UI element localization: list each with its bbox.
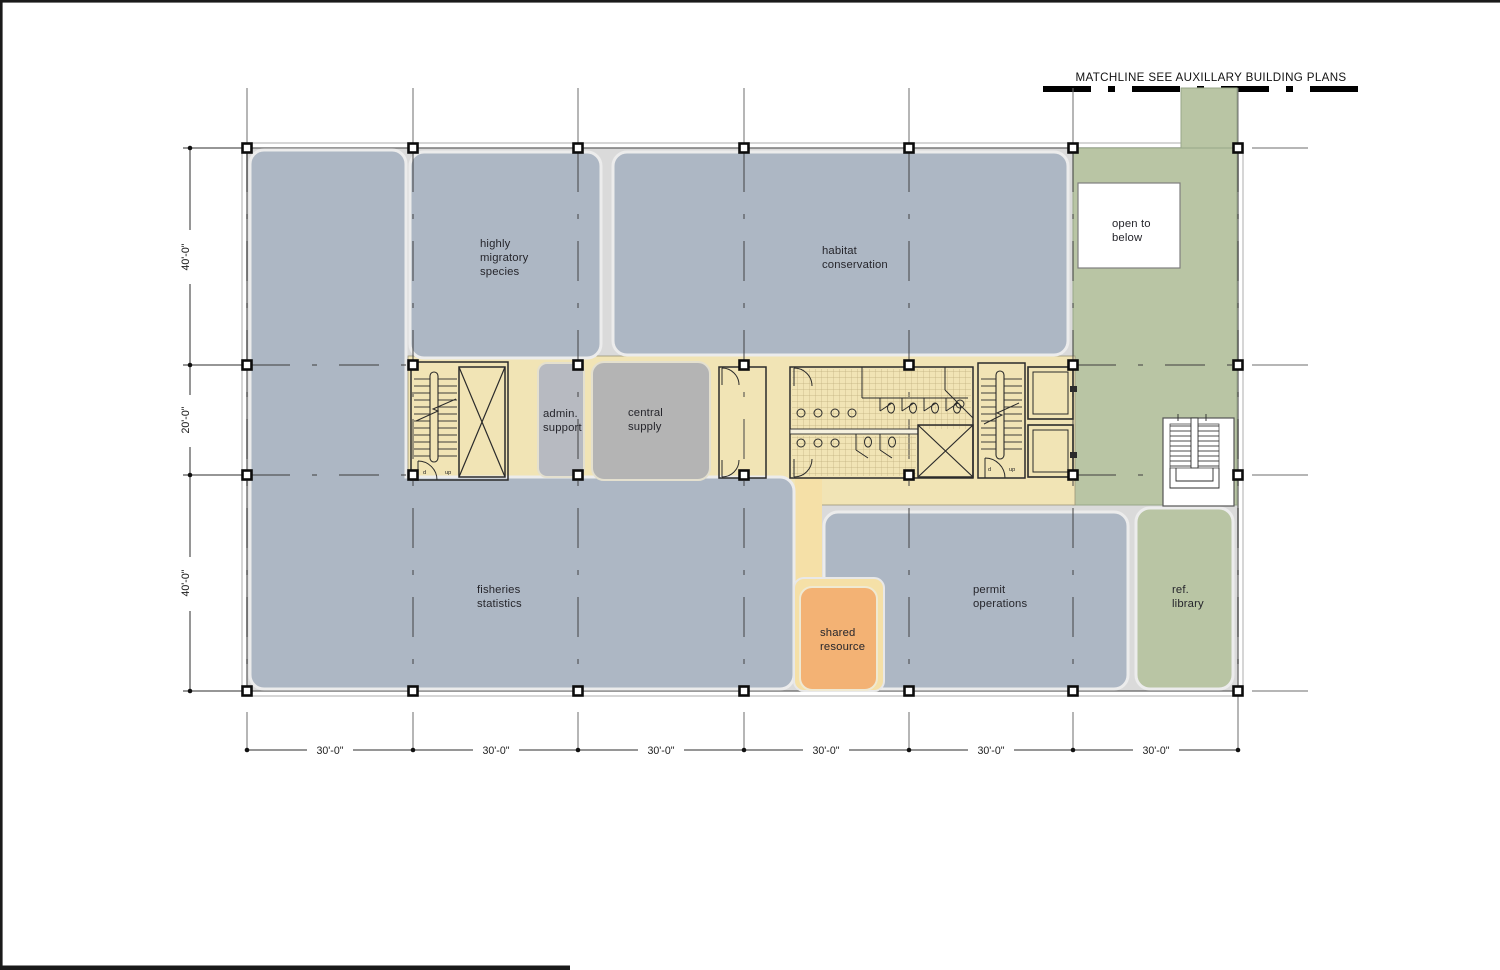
dimension-label: 30'-0" <box>978 745 1005 757</box>
stair-down-label: d <box>423 470 426 476</box>
left-dimension-string: 40'-0" 20'-0" 40'-0" <box>180 146 243 694</box>
dimension-label: 40'-0" <box>180 243 192 270</box>
dimension-label: 30'-0" <box>1143 745 1170 757</box>
dimension-label: 20'-0" <box>180 406 192 433</box>
exterior-stair <box>1163 414 1234 506</box>
stair-down-label: d <box>988 467 991 473</box>
bottom-dimension-string: 30'-0" 30'-0" 30'-0" 30'-0" 30'-0" 30'-0… <box>245 743 1241 758</box>
matchline-note: MATCHLINE SEE AUXILLARY BUILDING PLANS <box>1075 71 1346 84</box>
dimension-label: 30'-0" <box>648 745 675 757</box>
corridor <box>795 477 822 589</box>
room-admin-support <box>538 363 584 477</box>
dimension-label: 30'-0" <box>483 745 510 757</box>
dimension-label: 40'-0" <box>180 569 192 596</box>
stair-up-label: up <box>445 470 451 476</box>
matchline: MATCHLINE SEE AUXILLARY BUILDING PLANS <box>1043 71 1366 89</box>
stair-up-label: up <box>1009 467 1015 473</box>
dimension-label: 30'-0" <box>317 745 344 757</box>
floor-plan-sheet: { "drawing": { "matchline_note": "MATCHL… <box>0 0 1500 970</box>
dimension-label: 30'-0" <box>813 745 840 757</box>
zone-atrium-green-strip <box>1181 88 1237 150</box>
